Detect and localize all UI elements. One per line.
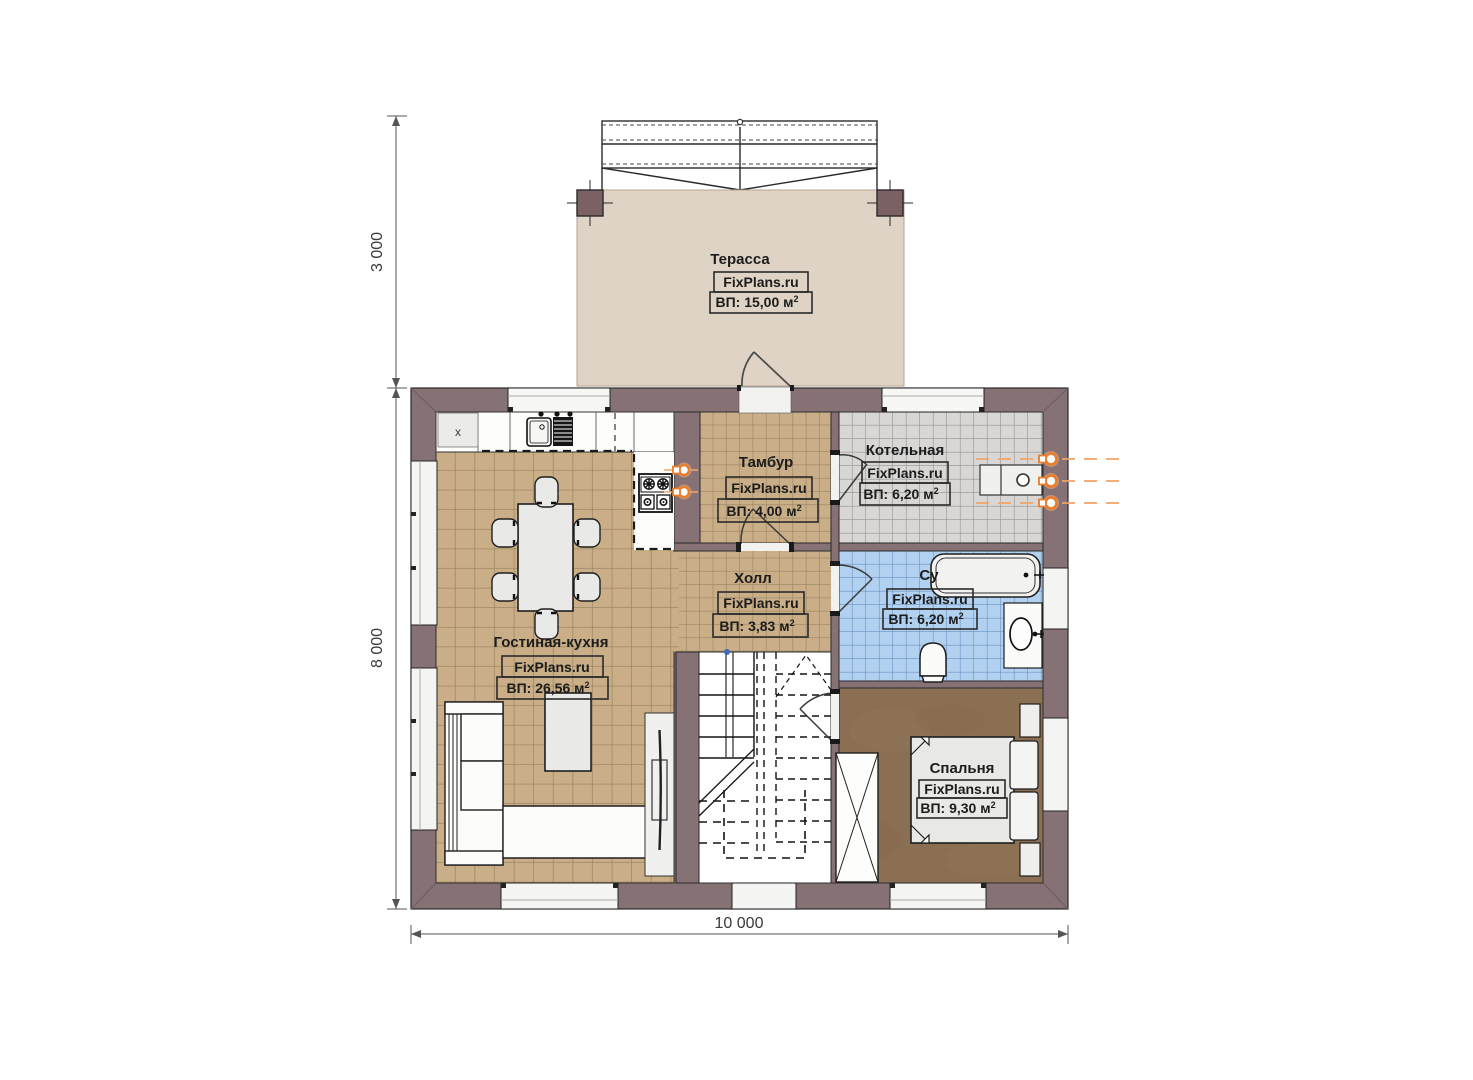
svg-text:ВП: 6,20 м2: ВП: 6,20 м2 (863, 486, 938, 502)
svg-text:FixPlans.ru: FixPlans.ru (514, 659, 589, 675)
svg-text:Спальня: Спальня (930, 760, 995, 777)
svg-text:ВП: 4,00 м2: ВП: 4,00 м2 (726, 503, 801, 519)
svg-text:ВП: 6,20 м2: ВП: 6,20 м2 (888, 611, 963, 627)
svg-text:ВП: 9,30 м2: ВП: 9,30 м2 (920, 800, 995, 816)
svg-text:ВП: 3,83 м2: ВП: 3,83 м2 (719, 618, 794, 634)
svg-text:Тамбур: Тамбур (739, 454, 793, 471)
svg-text:Су: Су (919, 567, 939, 584)
svg-text:10 000: 10 000 (715, 915, 764, 932)
svg-text:FixPlans.ru: FixPlans.ru (867, 465, 942, 481)
svg-text:3 000: 3 000 (369, 232, 386, 272)
svg-text:8 000: 8 000 (369, 628, 386, 668)
svg-text:ВП: 26,56 м2: ВП: 26,56 м2 (506, 680, 589, 696)
svg-text:FixPlans.ru: FixPlans.ru (892, 591, 967, 607)
svg-text:Гостиная-кухня: Гостиная-кухня (494, 634, 609, 651)
svg-text:x: x (455, 425, 461, 439)
svg-text:FixPlans.ru: FixPlans.ru (723, 274, 798, 290)
svg-text:FixPlans.ru: FixPlans.ru (723, 595, 798, 611)
svg-text:Холл: Холл (734, 570, 772, 587)
svg-text:Котельная: Котельная (866, 442, 945, 459)
svg-text:FixPlans.ru: FixPlans.ru (731, 480, 806, 496)
svg-text:FixPlans.ru: FixPlans.ru (924, 781, 999, 797)
svg-text:Терасса: Терасса (710, 251, 770, 268)
svg-text:ВП: 15,00 м2: ВП: 15,00 м2 (715, 294, 798, 310)
